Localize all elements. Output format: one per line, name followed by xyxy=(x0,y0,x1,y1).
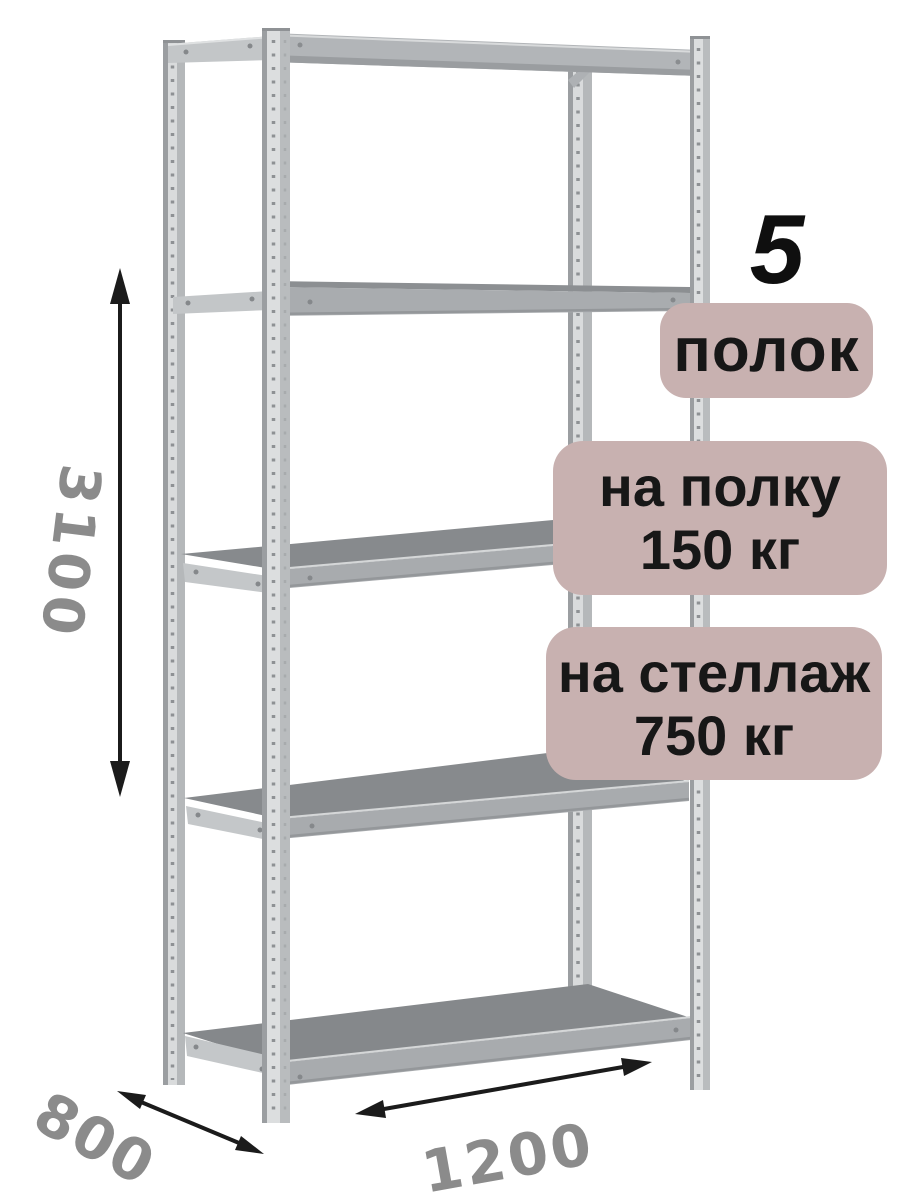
shelf-1 xyxy=(168,33,700,76)
height-arrow xyxy=(110,268,130,797)
rack-load-line2: 750 кг xyxy=(546,704,882,767)
shelf-load-line2: 150 кг xyxy=(553,518,887,581)
shelf-load-badge: на полку 150 кг xyxy=(553,441,887,595)
shelf-2 xyxy=(173,281,690,316)
shelf-count-label: полок xyxy=(673,316,859,385)
rack-load-badge: на стеллаж 750 кг xyxy=(546,627,882,780)
shelf-count-badge: полок xyxy=(660,303,873,398)
rack-load-line1: на стеллаж xyxy=(546,641,882,704)
rack-illustration xyxy=(0,0,900,1200)
post-back-left xyxy=(163,40,185,1085)
shelf-count-number: 5 xyxy=(715,200,839,298)
product-image: 5 полок на полку 150 кг на стеллаж 750 к… xyxy=(0,0,900,1200)
shelf-5 xyxy=(183,984,691,1086)
shelf-load-line1: на полку xyxy=(553,455,887,518)
post-front-left xyxy=(262,28,290,1123)
